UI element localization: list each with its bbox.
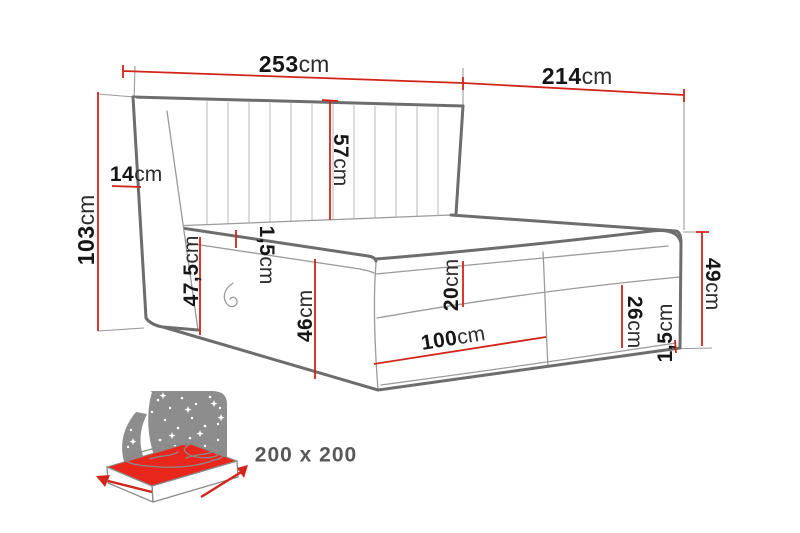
label-piping-bottom-1-5: 1,5cm (654, 304, 677, 363)
label-wing-14: 14cm (110, 163, 162, 186)
label-base-46: 46cm (294, 290, 317, 342)
size-badge: 200 x 200 (255, 444, 357, 467)
label-foot-height-49: 49cm (702, 258, 725, 310)
bed-dimension-diagram: 253cm 214cm 103cm 14cm 57cm 1,5cm 47,5cm… (0, 0, 800, 533)
label-headboard-57: 57cm (330, 134, 353, 186)
bed-body (146, 215, 681, 390)
dimension-line-14 (112, 186, 141, 187)
diagram-canvas: 253cm 214cm 103cm 14cm 57cm 1,5cm 47,5cm… (0, 0, 800, 533)
label-mattress-20: 20cm (440, 259, 463, 311)
label-width-253: 253cm (259, 51, 330, 77)
bed-size-icon (96, 391, 248, 502)
label-height-103: 103cm (73, 195, 99, 266)
label-length-214: 214cm (542, 63, 613, 89)
label-piping-top-1-5: 1,5cm (256, 226, 279, 285)
label-base-right-26: 26cm (624, 296, 647, 348)
label-side-47-5: 47,5cm (180, 236, 203, 307)
